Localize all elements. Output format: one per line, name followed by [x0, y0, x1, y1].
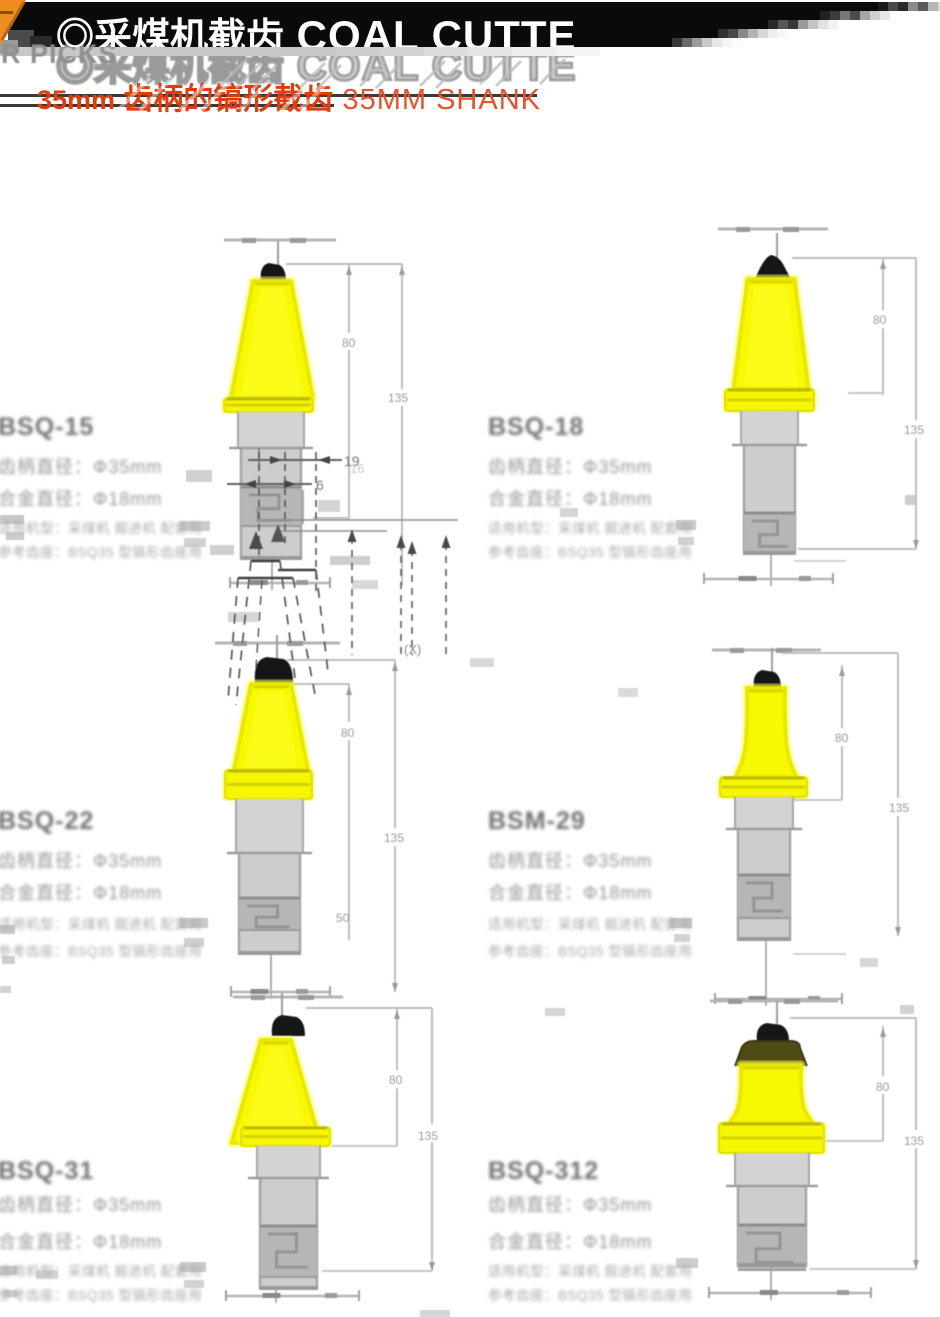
svg-text:(X): (X): [404, 642, 421, 657]
svg-text:6: 6: [316, 477, 324, 493]
svg-text:135: 135: [889, 801, 909, 815]
svg-text:135: 135: [904, 1134, 924, 1148]
svg-text:50: 50: [336, 911, 350, 925]
svg-text:135: 135: [904, 423, 924, 437]
svg-text:80: 80: [876, 1080, 890, 1094]
svg-text:135: 135: [418, 1129, 438, 1143]
svg-text:80: 80: [389, 1073, 403, 1087]
svg-text:80: 80: [342, 336, 356, 350]
svg-text:16: 16: [350, 461, 364, 476]
svg-text:80: 80: [835, 731, 849, 745]
svg-text:80: 80: [873, 313, 887, 327]
svg-text:135: 135: [388, 391, 408, 405]
svg-text:135: 135: [384, 831, 404, 845]
svg-text:80: 80: [341, 726, 355, 740]
